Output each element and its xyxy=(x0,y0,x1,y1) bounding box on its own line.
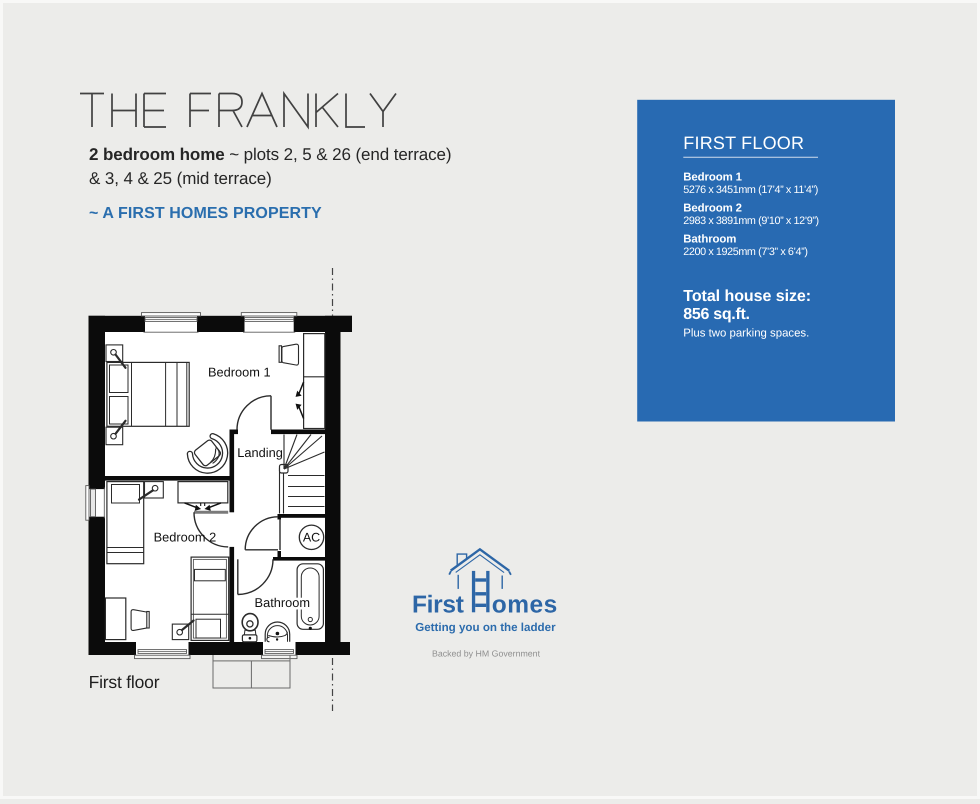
svg-text:2200 x 1925mm (7’3” x 6’4”): 2200 x 1925mm (7’3” x 6’4”) xyxy=(683,246,807,258)
svg-text:5276 x 3451mm (17’4” x 11’4”): 5276 x 3451mm (17’4” x 11’4”) xyxy=(683,184,818,196)
svg-text:Bedroom 1: Bedroom 1 xyxy=(208,364,271,379)
svg-text:FIRST FLOOR: FIRST FLOOR xyxy=(683,133,804,153)
svg-text:2 bedroom home ~ plots 2, 5 &: 2 bedroom home ~ plots 2, 5 & 26 (end te… xyxy=(89,145,451,164)
svg-text:856 sq.ft.: 856 sq.ft. xyxy=(683,306,749,323)
svg-text:Landing: Landing xyxy=(237,445,283,460)
svg-text:First: First xyxy=(412,591,464,618)
svg-text:AC: AC xyxy=(303,531,320,545)
svg-text:Bedroom 2: Bedroom 2 xyxy=(683,203,742,215)
svg-text:Getting you on the ladder: Getting you on the ladder xyxy=(415,621,556,634)
svg-text:Bathroom: Bathroom xyxy=(255,595,310,610)
svg-text:Plus two parking spaces.: Plus two parking spaces. xyxy=(683,328,809,340)
svg-text:First floor: First floor xyxy=(89,672,160,692)
svg-text:Bathroom: Bathroom xyxy=(683,234,736,246)
svg-text:& 3, 4 & 25 (mid terrace): & 3, 4 & 25 (mid terrace) xyxy=(89,169,272,188)
svg-text:Backed by HM Government: Backed by HM Government xyxy=(432,649,541,659)
svg-text:omes: omes xyxy=(492,591,558,618)
svg-text:Bedroom 2: Bedroom 2 xyxy=(154,530,217,545)
svg-text:2983 x 3891mm (9’10” x 12’9”): 2983 x 3891mm (9’10” x 12’9”) xyxy=(683,215,818,227)
svg-text:Total house size:: Total house size: xyxy=(683,288,811,305)
svg-text:Bedroom 1: Bedroom 1 xyxy=(683,172,742,184)
svg-text:~ A FIRST HOMES PROPERTY: ~ A FIRST HOMES PROPERTY xyxy=(89,205,322,222)
